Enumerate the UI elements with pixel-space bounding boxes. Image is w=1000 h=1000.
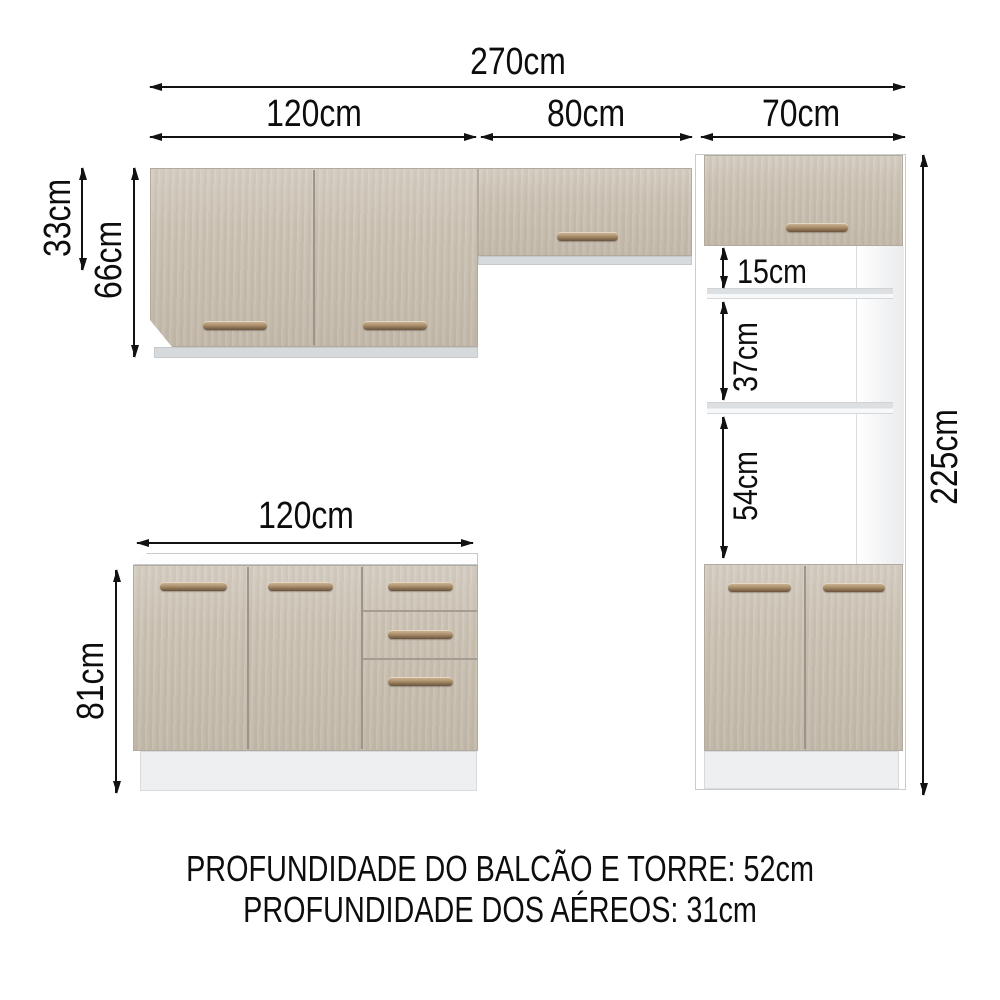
base-cabinet-drawer-gap-1	[363, 610, 477, 612]
dim-label-tower-height: 225cm	[926, 409, 964, 505]
tower-top-door-handle	[786, 223, 848, 232]
base-cabinet-door-gap-1	[247, 567, 249, 749]
wall-cabinet-left-bottom-panel	[154, 347, 478, 358]
dim-arrow-wall-left-height	[133, 168, 135, 357]
wall-cabinet-middle-bottom-panel	[478, 256, 692, 265]
dim-arrow-tower-middle-shelf	[722, 302, 724, 400]
wall-cabinet-middle-door	[478, 168, 692, 256]
dim-label-tower-top-gap: 15cm	[737, 255, 807, 289]
dim-label-base-width: 120cm	[258, 497, 354, 535]
dim-arrow-tower-top-gap	[722, 248, 724, 288]
dim-label-wall-middle-height: 33cm	[39, 179, 77, 257]
dim-label-wall-left-width: 120cm	[266, 95, 362, 133]
wall-cabinet-middle	[478, 168, 692, 265]
tower-bottom-door2-handle	[823, 583, 885, 592]
dim-label-total-width: 270cm	[470, 43, 566, 81]
footer-depth-base-tower: PROFUNDIDADE DO BALCÃO E TORRE: 52cm	[186, 851, 814, 887]
dim-label-wall-middle-width: 80cm	[547, 95, 625, 133]
base-cabinet-door1-handle	[160, 582, 227, 591]
dim-arrow-total-width	[150, 86, 905, 88]
base-cabinet-drawer-gap-2	[363, 658, 477, 660]
dim-label-wall-left-height: 66cm	[90, 221, 128, 299]
tower-top-door	[704, 155, 903, 246]
base-cabinet-drawer1-handle	[388, 582, 453, 591]
base-cabinet-plinth	[140, 751, 477, 791]
dim-arrow-base-width	[137, 542, 473, 544]
kitchen-dimension-diagram: 270cm 120cm 80cm 70cm 33cm 66cm	[0, 0, 1000, 1000]
dim-arrow-base-height	[115, 570, 117, 793]
tower-plinth	[704, 751, 899, 789]
dim-label-base-height: 81cm	[72, 642, 110, 720]
base-cabinet-drawer3-handle	[388, 677, 453, 686]
tower-bottom-door-gap	[804, 566, 806, 749]
dim-arrow-wall-left-width	[150, 136, 476, 138]
base-cabinet-countertop	[133, 553, 478, 565]
dim-arrow-tower-width	[701, 136, 905, 138]
dim-label-tower-lower-shelf: 54cm	[729, 451, 763, 521]
wall-cabinet-left-door-gap	[313, 170, 315, 345]
base-cabinet	[133, 553, 478, 792]
tower-shelf-2	[707, 402, 893, 414]
wall-cabinet-left	[150, 168, 478, 358]
wall-cabinet-middle-handle	[557, 232, 618, 241]
dim-label-tower-width: 70cm	[762, 95, 840, 133]
tower-bottom-door1-handle	[728, 583, 791, 592]
footer-depth-wall-units: PROFUNDIDADE DOS AÉREOS: 31cm	[243, 892, 757, 928]
dim-arrow-wall-middle-width	[481, 136, 692, 138]
dim-arrow-tower-lower-shelf	[722, 417, 724, 558]
dim-arrow-wall-middle-height	[81, 168, 83, 270]
base-cabinet-door2-handle	[268, 582, 333, 591]
wall-cabinet-left-door2-handle	[363, 321, 427, 330]
wall-cabinet-left-door1-handle	[203, 321, 267, 330]
dim-label-tower-middle-shelf: 37cm	[729, 322, 763, 392]
base-cabinet-drawer2-handle	[388, 630, 453, 639]
